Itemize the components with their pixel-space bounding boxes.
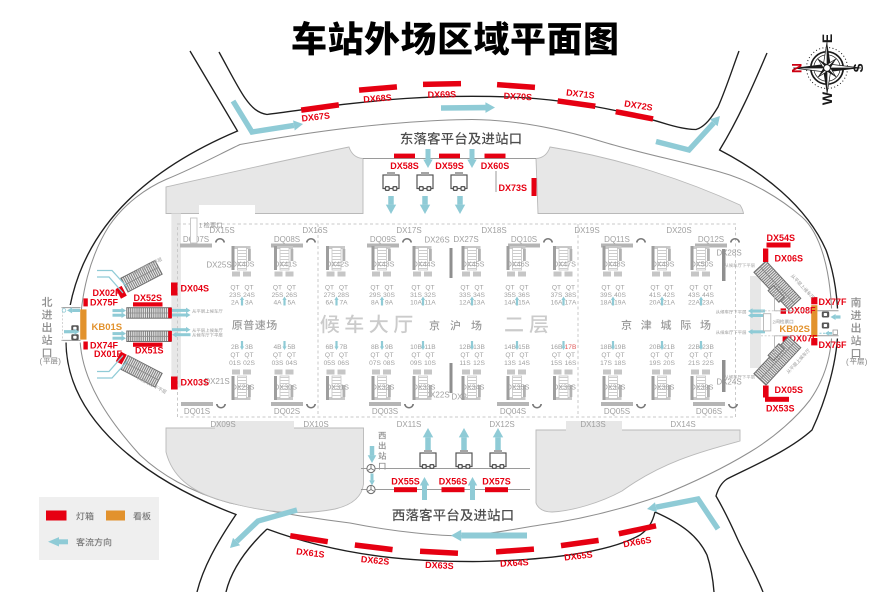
svg-text:3B: 3B	[245, 344, 254, 351]
svg-text:QT: QT	[339, 285, 348, 292]
svg-text:DX48S: DX48S	[603, 260, 626, 269]
svg-text:DX68S: DX68S	[363, 93, 392, 105]
svg-text:DX50S: DX50S	[691, 260, 714, 269]
svg-text:19S: 19S	[649, 360, 661, 367]
svg-text:DX57S: DX57S	[482, 477, 511, 487]
svg-text:13S: 13S	[504, 360, 516, 367]
svg-text:QT: QT	[601, 285, 610, 292]
svg-text:17B: 17B	[565, 344, 577, 351]
svg-text:5A: 5A	[287, 300, 296, 307]
svg-text:01S: 01S	[229, 360, 241, 367]
svg-text:QT: QT	[273, 285, 282, 292]
svg-text:DX16S: DX16S	[302, 226, 327, 235]
svg-text:2: 2	[773, 320, 776, 325]
svg-text:40S: 40S	[614, 292, 626, 299]
svg-text:DX31S: DX31S	[326, 383, 349, 392]
svg-text:22B: 22B	[688, 344, 700, 351]
svg-text:07S: 07S	[369, 360, 381, 367]
svg-text:38S: 38S	[565, 292, 577, 299]
svg-text:DX30S: DX30S	[274, 383, 297, 392]
svg-text:22S: 22S	[702, 360, 714, 367]
svg-text:QT: QT	[689, 352, 698, 359]
svg-text:S: S	[850, 63, 866, 72]
svg-text:DQ11S: DQ11S	[604, 235, 630, 244]
svg-text:29S: 29S	[369, 292, 381, 299]
svg-text:33S: 33S	[459, 292, 471, 299]
svg-text:42S: 42S	[663, 292, 675, 299]
svg-text:DX29S: DX29S	[232, 383, 255, 392]
svg-text:DX42S: DX42S	[326, 260, 349, 269]
svg-text:31S: 31S	[410, 292, 422, 299]
svg-text:QT: QT	[244, 352, 253, 359]
svg-text:QT: QT	[474, 285, 483, 292]
svg-text:): )	[865, 358, 868, 367]
svg-text:QT: QT	[566, 352, 575, 359]
svg-text:1: 1	[199, 223, 203, 230]
svg-text:QT: QT	[460, 352, 469, 359]
svg-text:09S: 09S	[410, 360, 422, 367]
svg-text:QT: QT	[474, 352, 483, 359]
svg-text:DX59S: DX59S	[435, 161, 464, 171]
svg-text:10S: 10S	[424, 360, 436, 367]
svg-text:2B: 2B	[231, 344, 240, 351]
svg-text:DQ10S: DQ10S	[511, 235, 537, 244]
svg-text:13A: 13A	[473, 300, 485, 307]
svg-text:QT: QT	[703, 285, 712, 292]
svg-text:DX36S: DX36S	[553, 383, 576, 392]
svg-text:7B: 7B	[339, 344, 348, 351]
svg-text:25S: 25S	[272, 292, 284, 299]
svg-text:N: N	[789, 63, 805, 73]
svg-text:QT: QT	[664, 352, 673, 359]
svg-text:7A: 7A	[339, 300, 348, 307]
svg-text:DX25S: DX25S	[206, 261, 231, 270]
svg-text:16B: 16B	[551, 344, 563, 351]
svg-text:34S: 34S	[473, 292, 485, 299]
svg-text:20S: 20S	[663, 360, 675, 367]
svg-text:20B: 20B	[649, 344, 661, 351]
svg-text:43S: 43S	[688, 292, 700, 299]
svg-text:DX54S: DX54S	[767, 233, 796, 243]
svg-text:DX38S: DX38S	[652, 383, 675, 392]
svg-text:QT: QT	[244, 285, 253, 292]
svg-text:QT: QT	[615, 285, 624, 292]
svg-text:QT: QT	[325, 352, 334, 359]
svg-text:DQ08S: DQ08S	[274, 235, 300, 244]
svg-text:06S: 06S	[338, 360, 350, 367]
svg-text:QT: QT	[370, 352, 379, 359]
svg-text:DX75F: DX75F	[90, 297, 119, 307]
svg-text:QT: QT	[650, 352, 659, 359]
svg-text:17A: 17A	[565, 300, 577, 307]
svg-text:QT: QT	[689, 285, 698, 292]
svg-text:DX33S: DX33S	[413, 383, 436, 392]
svg-text:15S: 15S	[551, 360, 563, 367]
svg-text:DX40S: DX40S	[232, 260, 255, 269]
svg-text:KB01S: KB01S	[92, 322, 123, 333]
svg-text:QT: QT	[601, 352, 610, 359]
svg-text:16S: 16S	[565, 360, 577, 367]
svg-text:DX64S: DX64S	[500, 557, 529, 569]
svg-text:DQ01S: DQ01S	[184, 407, 210, 416]
svg-text:32S: 32S	[424, 292, 436, 299]
svg-text:9A: 9A	[385, 300, 394, 307]
svg-text:03S: 03S	[272, 360, 284, 367]
svg-text:DX10S: DX10S	[303, 420, 328, 429]
svg-text:DX27S: DX27S	[453, 235, 478, 244]
svg-text:DX14S: DX14S	[670, 420, 695, 429]
svg-text:18B: 18B	[600, 344, 612, 351]
svg-text:41S: 41S	[649, 292, 661, 299]
svg-text:9B: 9B	[385, 344, 394, 351]
svg-text:DX20S: DX20S	[666, 226, 691, 235]
svg-text:8A: 8A	[371, 300, 380, 307]
svg-text:QT: QT	[703, 352, 712, 359]
svg-text:QT: QT	[370, 285, 379, 292]
svg-text:QT: QT	[505, 352, 514, 359]
svg-text:DX37S: DX37S	[603, 383, 626, 392]
svg-text:28S: 28S	[338, 292, 350, 299]
svg-text:QT: QT	[519, 285, 528, 292]
svg-text:23B: 23B	[702, 344, 714, 351]
svg-text:DX28S: DX28S	[716, 249, 741, 258]
svg-text:19A: 19A	[614, 300, 626, 307]
svg-text:QT: QT	[552, 352, 561, 359]
svg-text:15B: 15B	[518, 344, 530, 351]
svg-text:DX73S: DX73S	[498, 183, 527, 193]
svg-text:QT: QT	[230, 352, 239, 359]
svg-text:37S: 37S	[551, 292, 563, 299]
svg-text:21S: 21S	[688, 360, 700, 367]
svg-text:E: E	[819, 34, 835, 43]
svg-text:26S: 26S	[286, 292, 298, 299]
svg-text:DX39S: DX39S	[691, 383, 714, 392]
svg-text:DX45S: DX45S	[462, 260, 485, 269]
svg-text:6A: 6A	[325, 300, 334, 307]
svg-text:DX06S: DX06S	[775, 254, 804, 264]
svg-text:05S: 05S	[324, 360, 336, 367]
svg-text:4B: 4B	[273, 344, 282, 351]
svg-text:QT: QT	[287, 285, 296, 292]
svg-text:DX63S: DX63S	[425, 560, 454, 571]
svg-text:11B: 11B	[424, 344, 436, 351]
svg-text:2A: 2A	[231, 300, 240, 307]
svg-text:DX49S: DX49S	[652, 260, 675, 269]
svg-text:36S: 36S	[518, 292, 530, 299]
svg-text:DX58S: DX58S	[390, 161, 419, 171]
svg-text:18A: 18A	[600, 300, 612, 307]
svg-text:39S: 39S	[600, 292, 612, 299]
svg-text:(: (	[40, 357, 43, 366]
svg-text:DQ05S: DQ05S	[604, 407, 630, 416]
svg-text:22A: 22A	[688, 300, 700, 307]
svg-text:8B: 8B	[371, 344, 380, 351]
svg-text:13B: 13B	[473, 344, 485, 351]
svg-text:DX13S: DX13S	[580, 420, 605, 429]
svg-text:11A: 11A	[424, 300, 436, 307]
svg-text:QT: QT	[425, 285, 434, 292]
svg-text:DX43S: DX43S	[372, 260, 395, 269]
svg-text:W: W	[819, 91, 835, 105]
svg-text:QT: QT	[460, 285, 469, 292]
svg-text:16A: 16A	[551, 300, 563, 307]
svg-text:DX02F: DX02F	[93, 288, 122, 298]
svg-text:30S: 30S	[383, 292, 395, 299]
svg-text:6B: 6B	[325, 344, 334, 351]
svg-text:QT: QT	[650, 285, 659, 292]
svg-text:DX32S: DX32S	[372, 383, 395, 392]
svg-text:DX35S: DX35S	[507, 383, 530, 392]
svg-text:12A: 12A	[459, 300, 471, 307]
svg-text:10B: 10B	[410, 344, 422, 351]
svg-text:): )	[58, 357, 61, 366]
svg-text:DX70S: DX70S	[503, 91, 532, 103]
svg-text:DQ03S: DQ03S	[372, 407, 398, 416]
svg-text:DQ09S: DQ09S	[370, 235, 396, 244]
svg-text:11S: 11S	[459, 360, 471, 367]
svg-text:24S: 24S	[243, 292, 255, 299]
svg-text:12S: 12S	[473, 360, 485, 367]
svg-text:QT: QT	[384, 285, 393, 292]
svg-text:21A: 21A	[663, 300, 675, 307]
svg-text:DQ06S: DQ06S	[696, 407, 722, 416]
svg-text:DX17S: DX17S	[396, 226, 421, 235]
svg-text:23S: 23S	[229, 292, 241, 299]
svg-text:DQ12S: DQ12S	[698, 235, 724, 244]
svg-text:5B: 5B	[287, 344, 296, 351]
svg-text:QT: QT	[325, 285, 334, 292]
svg-text:DX69S: DX69S	[428, 89, 457, 99]
svg-text:14B: 14B	[504, 344, 516, 351]
svg-text:23A: 23A	[702, 300, 714, 307]
svg-text:QT: QT	[425, 352, 434, 359]
svg-text:DX19S: DX19S	[574, 226, 599, 235]
svg-text:QT: QT	[411, 352, 420, 359]
svg-text:DX12S: DX12S	[489, 420, 514, 429]
svg-text:04S: 04S	[286, 360, 298, 367]
svg-text:QT: QT	[566, 285, 575, 292]
svg-text:10A: 10A	[410, 300, 422, 307]
svg-text:DX03S: DX03S	[181, 378, 210, 388]
svg-text:DX46S: DX46S	[507, 260, 530, 269]
svg-text:QT: QT	[230, 285, 239, 292]
svg-text:DQ02S: DQ02S	[274, 407, 300, 416]
svg-text:44S: 44S	[702, 292, 714, 299]
svg-text:12B: 12B	[459, 344, 471, 351]
svg-text:(: (	[846, 358, 849, 367]
svg-text:DX77F: DX77F	[819, 297, 848, 307]
svg-text:DX56S: DX56S	[439, 477, 468, 487]
svg-text:DX55S: DX55S	[391, 477, 420, 487]
svg-text:QT: QT	[505, 285, 514, 292]
svg-text:DQ04S: DQ04S	[500, 407, 526, 416]
svg-text:15A: 15A	[518, 300, 530, 307]
svg-text:QT: QT	[411, 285, 420, 292]
svg-text:4A: 4A	[273, 300, 282, 307]
svg-text:DX01F: DX01F	[94, 349, 123, 359]
svg-text:DX34S: DX34S	[462, 383, 485, 392]
svg-text:14S: 14S	[518, 360, 530, 367]
svg-text:14A: 14A	[504, 300, 516, 307]
svg-text:DX60S: DX60S	[481, 161, 510, 171]
svg-text:21B: 21B	[663, 344, 675, 351]
svg-text:QT: QT	[615, 352, 624, 359]
svg-text:QT: QT	[552, 285, 561, 292]
svg-text:DX26S: DX26S	[424, 236, 449, 245]
svg-text:27S: 27S	[324, 292, 336, 299]
svg-text:DX41S: DX41S	[274, 260, 297, 269]
svg-text:02S: 02S	[243, 360, 255, 367]
svg-text:DX18S: DX18S	[481, 226, 506, 235]
svg-text:QT: QT	[287, 352, 296, 359]
svg-text:DX53S: DX53S	[766, 404, 795, 414]
svg-text:DX51S: DX51S	[135, 346, 164, 356]
svg-text:QT: QT	[664, 285, 673, 292]
svg-text:DX76F: DX76F	[819, 340, 848, 350]
svg-text:DX44S: DX44S	[413, 260, 436, 269]
svg-text:QT: QT	[339, 352, 348, 359]
svg-text:QT: QT	[273, 352, 282, 359]
svg-text:DX52S: DX52S	[134, 293, 163, 303]
svg-text:DX24S: DX24S	[716, 378, 741, 387]
svg-text:DX05S: DX05S	[775, 385, 804, 395]
svg-text:QT: QT	[519, 352, 528, 359]
svg-text:DX47S: DX47S	[553, 260, 576, 269]
svg-text:DX04S: DX04S	[181, 284, 210, 294]
svg-text:19B: 19B	[614, 344, 626, 351]
svg-text:08S: 08S	[383, 360, 395, 367]
svg-text:3A: 3A	[245, 300, 254, 307]
svg-text:DX11S: DX11S	[397, 420, 422, 429]
svg-text:35S: 35S	[504, 292, 516, 299]
svg-text:18S: 18S	[614, 360, 626, 367]
svg-text:DX09S: DX09S	[210, 420, 235, 429]
svg-text:20A: 20A	[649, 300, 661, 307]
svg-text:17S: 17S	[600, 360, 612, 367]
svg-text:QT: QT	[384, 352, 393, 359]
